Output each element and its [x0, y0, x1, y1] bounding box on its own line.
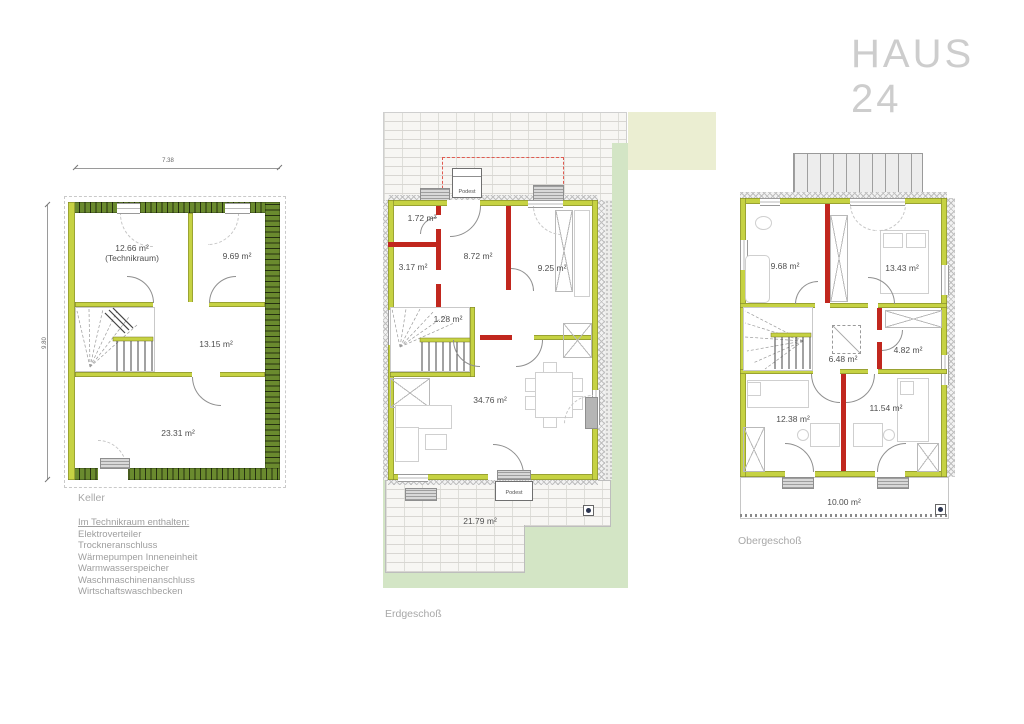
room-label: 11.54 m² — [870, 403, 903, 413]
note-item: Trockneranschluss — [78, 540, 197, 552]
room-label: 13.43 m² — [885, 263, 919, 273]
room-label-technikraum: 12.66 m² (Technikraum) — [105, 243, 159, 263]
room-label: 13.15 m² — [199, 339, 233, 349]
terrace-paving-lower — [385, 525, 525, 573]
note-item: Warmwasserspeicher — [78, 563, 197, 575]
note-item: Waschmaschinenanschluss — [78, 575, 197, 587]
wardrobe-xbox — [830, 215, 848, 302]
bathtub — [745, 255, 770, 303]
sofa — [395, 405, 452, 429]
og-window — [760, 198, 780, 206]
coffee-table — [425, 434, 447, 450]
terrace-mat — [405, 488, 437, 501]
og-window — [941, 265, 949, 295]
podest-top: Podest — [452, 168, 482, 198]
drain-icon — [583, 505, 594, 516]
room-label: 9.68 m² — [771, 261, 800, 271]
chair — [572, 378, 583, 392]
dimension-line-width — [75, 168, 280, 169]
stairs — [75, 307, 155, 372]
keller-window — [225, 203, 250, 214]
insulation-hatch-right — [598, 200, 605, 480]
technikraum-note: Im Technikraum enthalten: Elektroverteil… — [78, 517, 197, 598]
room-label: 6.48 m² — [829, 354, 858, 364]
eg-red-wall-segment — [480, 335, 512, 340]
keller-door-opening — [98, 468, 128, 480]
plan-label-keller: Keller — [78, 492, 105, 504]
room-label: 34.76 m² — [473, 395, 507, 405]
kitchen-counter — [574, 210, 590, 297]
room-label: 21.79 m² — [463, 516, 497, 526]
page-title: HAUS 24 — [851, 32, 1024, 122]
wardrobe-xbox — [885, 310, 942, 328]
chair — [543, 362, 557, 373]
keller-door-opening — [153, 302, 209, 307]
sofa-corner — [395, 427, 419, 462]
note-heading: Im Technikraum enthalten: — [78, 517, 197, 529]
keller-wall-left — [68, 202, 75, 480]
room-label: 1.28 m² — [434, 314, 463, 324]
chair — [543, 417, 557, 428]
dimension-tick — [45, 477, 51, 483]
balcony-edge-dots — [740, 514, 947, 517]
room-label: 12.38 m² — [776, 414, 810, 424]
pillow — [900, 381, 914, 395]
dimension-height-value: 9.80 — [42, 337, 48, 349]
pillow — [883, 233, 903, 248]
void-dashed-square — [832, 325, 861, 354]
room-label: 10.00 m² — [827, 497, 861, 507]
keller-partition-h2 — [75, 372, 265, 377]
eg-window — [398, 474, 428, 482]
entrance-mat — [497, 470, 531, 480]
keller-window — [117, 203, 140, 214]
chair — [525, 396, 536, 410]
keller-wall-right — [265, 202, 280, 480]
neighbor-garden-patch — [628, 112, 716, 170]
eg-wall-top — [388, 200, 598, 206]
keller-partition-vertical — [188, 213, 193, 305]
room-label: 1.72 m² — [408, 213, 437, 223]
plan-label-obergeschoss: Obergeschoß — [738, 535, 802, 547]
podest-step-line — [453, 176, 481, 177]
gravel-strip — [605, 200, 612, 480]
room-label: 9.69 m² — [223, 251, 252, 261]
desk — [853, 423, 883, 447]
wardrobe-xbox — [917, 443, 939, 472]
wardrobe-xbox — [390, 378, 430, 408]
entrance-mat — [100, 458, 130, 469]
room-label: 3.17 m² — [399, 262, 428, 272]
desk-chair — [883, 429, 895, 441]
floor-plan-sheet: HAUS 24 7.38 9.80 — [0, 0, 1024, 724]
eg-red-wall-wc-bottom — [388, 242, 441, 247]
chair — [525, 378, 536, 392]
note-item: Wirtschaftswaschbecken — [78, 586, 197, 598]
pillow — [747, 382, 761, 396]
wardrobe-xbox — [743, 427, 765, 472]
note-item: Wärmepumpen Inneneinheit — [78, 552, 197, 564]
keller-plan: 7.38 9.80 — [40, 150, 302, 620]
obergeschoss-plan: 9.68 m² 13.43 m² 6.48 m² 4.82 m² 12.38 m… — [735, 145, 970, 575]
insulation-hatch-right — [947, 198, 955, 477]
eg-wall-right — [592, 200, 598, 480]
podest-bottom: Podest — [495, 481, 533, 501]
desk — [810, 423, 840, 447]
wardrobe-xbox — [563, 323, 592, 358]
eg-door-opening — [436, 270, 441, 284]
plan-label-erdgeschoss: Erdgeschoß — [385, 608, 442, 620]
eg-stair-wall — [390, 372, 475, 377]
erdgeschoss-plan: Podest — [383, 110, 718, 625]
drain-icon — [935, 504, 946, 515]
room-label: 23.31 m² — [161, 428, 195, 438]
washbasin — [755, 216, 772, 230]
note-item: Elektroverteiler — [78, 529, 197, 541]
desk-chair — [797, 429, 809, 441]
pillow — [906, 233, 926, 248]
room-label: 8.72 m² — [464, 251, 493, 261]
og-wall-right — [941, 198, 947, 477]
balcony-mat — [877, 477, 909, 489]
room-label: 4.82 m² — [894, 345, 923, 355]
balcony-mat — [782, 477, 814, 489]
dimension-tick — [277, 165, 283, 171]
dimension-width-value: 7.38 — [162, 158, 174, 164]
room-label: 9.25 m² — [538, 263, 567, 273]
stairs — [743, 307, 813, 371]
